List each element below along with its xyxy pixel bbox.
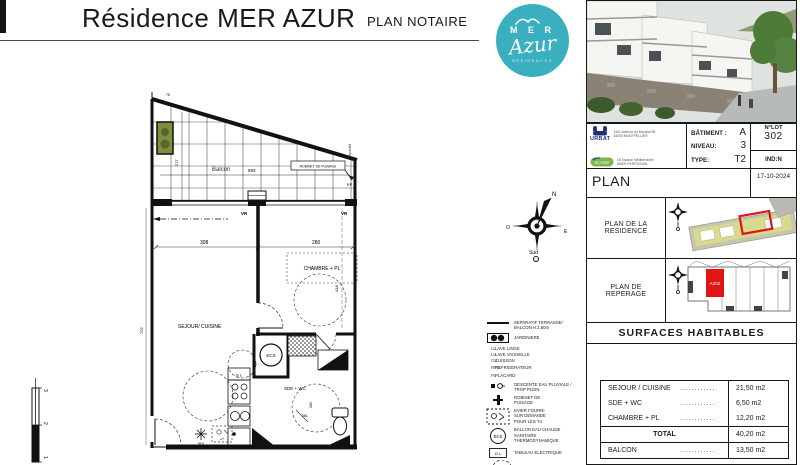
urbat-address-2: 34000 MONTPELLIER <box>613 134 655 138</box>
reperage-map: A302 <box>666 259 796 322</box>
chambre-room-label: CHAMBRE + PL <box>304 266 341 272</box>
reperage-unit-label: A302 <box>710 281 721 286</box>
abbr-rfg-label: REFRIGERATEUR <box>495 365 531 370</box>
shower-triangle-1 <box>252 428 276 447</box>
dots: ............ <box>680 447 728 454</box>
dim-281: 281 <box>302 414 308 418</box>
facade-wall <box>152 191 357 206</box>
residence-row: PLAN DE LA RESIDENCE <box>587 198 796 259</box>
icade-name: ICADE <box>595 160 610 166</box>
abbr-cu-label: CUISSON <box>495 358 515 363</box>
legend-ballon: ECS BALLON EAU CHAUDE SANITAIRE THERMODY… <box>482 427 594 445</box>
urbat-name: URBAT <box>590 136 610 142</box>
surfaces-title: SURFACES HABITABLES <box>587 323 796 344</box>
compass-north-label: N <box>552 192 556 198</box>
building-render <box>587 1 796 122</box>
entrance-door <box>155 419 181 445</box>
plan-row: PLAN 17-10-2024 <box>587 169 796 198</box>
shower-tray <box>288 336 316 356</box>
residence-site-plan <box>666 198 796 256</box>
corner-mark <box>0 0 6 33</box>
legend-tableau: G.L TABLEAU ELECTRIQUE <box>482 448 594 458</box>
sliding-direction-arrow <box>153 217 228 221</box>
dim-277: 277 <box>174 159 179 166</box>
total-label: TOTAL <box>601 431 728 438</box>
robinet-label: ROBINET DE PUISAGE <box>300 164 337 168</box>
legend-descente: DESCENTE EAU PLUVIALE / TROP PLEIN <box>482 382 594 393</box>
dim-593: 593 <box>248 168 256 173</box>
table-row: SDE + WC ............ 6,50 m2 <box>601 396 788 411</box>
surfaces-section: SURFACES HABITABLES SEJOUR / CUISINE ...… <box>587 323 796 465</box>
building-photo <box>587 1 796 124</box>
legend-evier: EVIER FOURNI SUR DEMANDE POUR LES T4 <box>482 408 594 425</box>
logo-residences-text: RESIDENCES <box>496 58 569 63</box>
robinet-cross-icon <box>493 395 503 405</box>
page-title: Résidence MER AZUR <box>82 3 342 34</box>
niveau-value: 3 <box>740 140 746 151</box>
compass-mini-icon <box>668 265 688 294</box>
gl-label: G.L <box>236 373 243 378</box>
jardiniere-icon <box>487 333 509 343</box>
dim-418: 418 <box>334 285 339 292</box>
surface-value: 12,20 m2 <box>728 411 788 426</box>
legend-separatif-l2: BALCON H:1,60m <box>514 325 594 330</box>
plan-notaire-page: Résidence MER AZUR PLAN NOTAIRE M E R Az… <box>0 0 800 465</box>
descente-ep-icon <box>490 382 506 391</box>
interior-dim-line: 308 280 <box>154 240 355 249</box>
table-row: SEJOUR / CUISINE ............ 21,50 m2 <box>601 381 788 396</box>
dim-308: 308 <box>200 240 209 246</box>
legend-jardiniere: JARDINIERE <box>482 333 594 343</box>
abbr-ll: LL <box>482 346 495 351</box>
reperage-row: PLAN DE REPERAGE <box>587 259 796 323</box>
developers-cell: URBAT 1401 Avenue du Mondial 98 34000 MO… <box>587 124 687 168</box>
tableau-electrique-icon: G.L <box>489 448 507 458</box>
legend-robinet: ROBINET DE PUISAGE <box>482 395 594 406</box>
reperage-row-label: PLAN DE REPERAGE <box>587 259 666 322</box>
dim-702: 702 <box>139 327 144 334</box>
icade-address-2: 66000 PERPIGNAN <box>617 162 654 166</box>
info-row: URBAT 1401 Avenue du Mondial 98 34000 MO… <box>587 124 796 169</box>
residence-map <box>666 198 796 258</box>
split-cabinet <box>318 350 348 370</box>
total-value: 40,20 m2 <box>728 427 788 442</box>
title-block-panel: URBAT 1401 Avenue du Mondial 98 34000 MO… <box>586 0 797 465</box>
legend-separatif: SEPARATIF TERRASSE/ BALCON H:1,60m <box>482 320 594 331</box>
legend-cut-circle <box>490 460 514 465</box>
urbat-block: URBAT 1401 Avenue du Mondial 98 34000 MO… <box>590 126 684 142</box>
legend-abbreviations: LLLAVE LINGE LVLAVE VAISSELLE CUCUISSON … <box>482 346 594 379</box>
compass-west-label: O <box>506 225 510 231</box>
legend-evier-l3: POUR LES T4 <box>514 419 594 424</box>
dim-78: 78 <box>166 93 170 97</box>
abbr-pl: PL <box>482 373 495 378</box>
legend: SEPARATIF TERRASSE/ BALCON H:1,60m JARDI… <box>482 320 594 465</box>
legend-jardiniere-label: JARDINIERE <box>514 333 594 343</box>
separator-line-icon <box>487 322 509 324</box>
legend-robinet-l2: PUISAGE <box>514 400 594 405</box>
plan-row-label: PLAN <box>587 169 750 197</box>
vr-label-1: VR <box>241 211 248 216</box>
rfg-icon <box>195 428 207 440</box>
surfaces-table: SEJOUR / CUISINE ............ 21,50 m2 S… <box>600 380 789 459</box>
separatif-label: Séparatif <box>348 144 352 158</box>
table-row-total: TOTAL 40,20 m2 <box>601 426 788 442</box>
abbr-pl-label: PLACARD <box>495 373 515 378</box>
dim-280b: 280 <box>309 402 313 408</box>
plan-type-label: PLAN NOTAIRE <box>367 14 467 29</box>
ecs-icon: ECS <box>489 427 507 445</box>
surface-label: SDE + WC <box>601 400 680 407</box>
icade-logo-icon: ICADE <box>590 157 614 167</box>
abbr-cu: CU <box>482 358 495 363</box>
abbr-ll-label: LAVE LINGE <box>495 346 520 351</box>
type-label: TYPE: <box>691 157 709 164</box>
type-value: T2 <box>734 154 746 165</box>
dim-280a: 280 <box>312 240 321 246</box>
dots: ............ <box>680 415 728 422</box>
sde-room-label: SDE + WC <box>284 386 307 391</box>
abbr-lv: LV <box>482 352 495 357</box>
shower-triangle-2 <box>325 435 350 447</box>
sejour-room-label: SEJOUR/ CUISINE <box>178 324 222 330</box>
ind-value: IND:N <box>751 151 796 168</box>
legend-descente-l2: TROP PLEIN <box>514 387 594 392</box>
batiment-value: A <box>739 127 746 138</box>
rfg-label: RFG <box>198 442 205 446</box>
floor-plan-drawing: 3 2 1 <box>20 78 380 465</box>
header-divider <box>0 40 479 41</box>
table-row: CHAMBRE + PL ............ 12,20 m2 <box>601 411 788 426</box>
scale-3: 3 <box>42 389 48 392</box>
ecs-icon-label: ECS <box>494 434 503 439</box>
balcon-value: 13,50 m2 <box>728 443 788 458</box>
surface-value: 21,50 m2 <box>728 381 788 396</box>
dots: ............ <box>680 385 728 392</box>
surface-value: 6,50 m2 <box>728 396 788 411</box>
abbr-rfg: RFG <box>482 365 495 370</box>
plan-date: 17-10-2024 <box>750 169 796 197</box>
scale-1: 1 <box>42 456 48 459</box>
ecs-label: ECS <box>266 353 275 358</box>
lot-cell: N°LOT 302 IND:N <box>751 124 796 168</box>
lot-value: 302 <box>751 131 796 142</box>
icade-block: ICADE 16 Espace Méditerranée 66000 PERPI… <box>590 157 684 167</box>
toilet <box>332 408 348 435</box>
abbr-lv-label: LAVE VAISSELLE <box>495 352 530 357</box>
compass-rose: N O E Sud <box>503 186 577 264</box>
robinet-note: ROBINET DE PUISAGE EP <box>291 161 354 187</box>
niveau-label: NIVEAU: <box>691 143 716 150</box>
balcony-room-label: Balcon <box>212 167 230 173</box>
dots: ............ <box>680 400 728 407</box>
chambre-door <box>258 303 283 328</box>
legend-ballon-l3: THERMODYNAMIQUE <box>514 438 594 443</box>
mer-azur-logo: M E R Azur RESIDENCES <box>496 4 569 77</box>
table-row-balcon: BALCON ............ 13,50 m2 <box>601 442 788 458</box>
batiment-label: BÂTIMENT : <box>691 130 727 137</box>
residence-row-label: PLAN DE LA RESIDENCE <box>587 198 666 258</box>
surface-label: SEJOUR / CUISINE <box>601 385 680 392</box>
ep-label: EP <box>347 182 353 187</box>
kitchen-block <box>228 368 250 447</box>
compass-east-label: E <box>564 229 568 235</box>
scale-2: 2 <box>42 422 48 425</box>
jardiniere-planter <box>157 122 173 154</box>
evier-icon <box>486 408 510 425</box>
balcon-label: BALCON <box>601 447 680 454</box>
tableau-icon-label: G.L <box>495 451 502 456</box>
legend-tableau-label: TABLEAU ELECTRIQUE <box>514 448 594 458</box>
ecs-water-heater: ECS <box>260 344 282 366</box>
compass-mini-icon <box>668 202 688 231</box>
urbat-logo-icon <box>592 126 608 136</box>
compass-south-label: Sud <box>529 250 538 256</box>
building-info-cell: BÂTIMENT : A NIVEAU: 3 TYPE: T2 <box>687 124 751 168</box>
surface-label: CHAMBRE + PL <box>601 415 680 422</box>
reperage-floor-plan: A302 <box>666 259 796 320</box>
graphic-scale-bar: 3 2 1 <box>32 378 48 462</box>
